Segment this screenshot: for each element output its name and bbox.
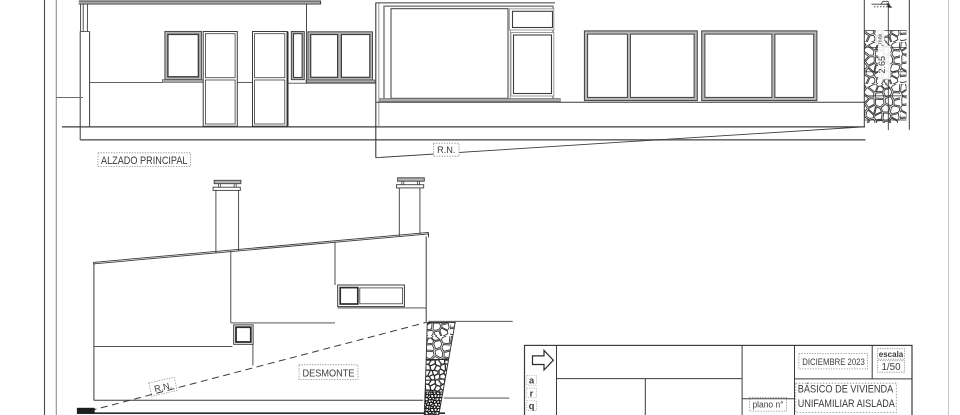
svg-text:escala: escala xyxy=(879,350,904,359)
svg-text:2.65: 2.65 xyxy=(877,56,887,74)
svg-text:BÁSICO DE VIVIENDA: BÁSICO DE VIVIENDA xyxy=(798,383,894,396)
svg-text:R.N.: R.N. xyxy=(437,145,455,155)
svg-text:ALZADO PRINCIPAL: ALZADO PRINCIPAL xyxy=(101,155,188,167)
svg-text:UNIFAMILIAR AISLADA: UNIFAMILIAR AISLADA xyxy=(798,398,896,410)
svg-text:1/50: 1/50 xyxy=(881,362,901,373)
svg-text:DICIEMBRE 2023: DICIEMBRE 2023 xyxy=(802,357,865,368)
svg-text:q: q xyxy=(529,401,535,412)
svg-text:DESMONTE: DESMONTE xyxy=(303,368,355,379)
svg-text:a: a xyxy=(529,376,535,387)
svg-text:max: max xyxy=(878,33,884,44)
svg-text:plano n°: plano n° xyxy=(753,400,784,410)
svg-text:r: r xyxy=(530,388,534,399)
